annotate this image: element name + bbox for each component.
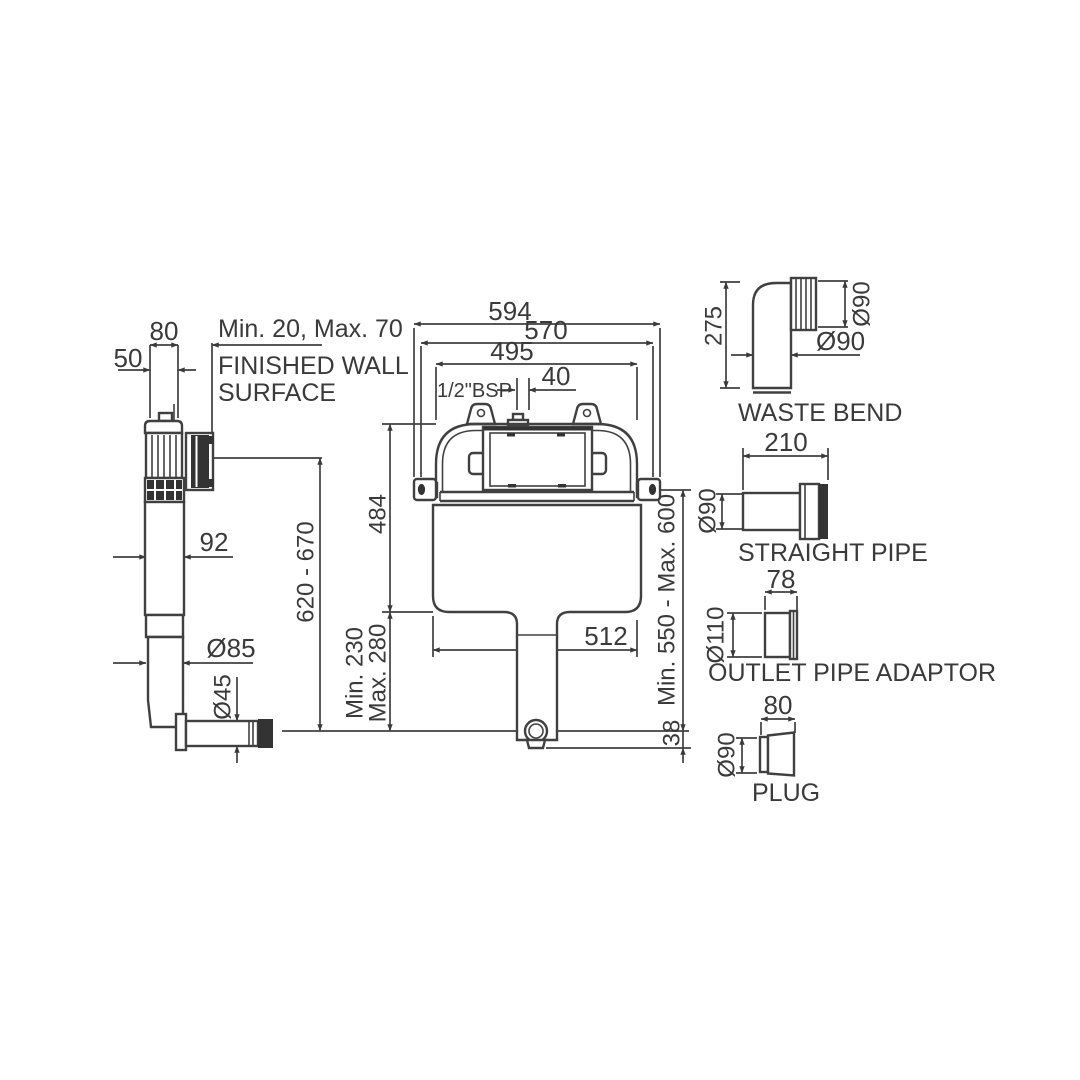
inlet-bsp-label: 1/2"BSP [437, 380, 512, 402]
cistern-installation-drawing: 80 50 Min. 20, Max. 70 FINISHED WALL SUR… [0, 0, 1080, 1080]
finished-wall-label-line1: FINISHED WALL [218, 352, 409, 380]
outlet-pipe-adaptor [727, 592, 797, 659]
straight-pipe [716, 448, 828, 539]
adaptor-title: OUTLET PIPE ADAPTOR [708, 659, 996, 687]
plug-dia-label: Ø90 [713, 732, 740, 777]
technical-drawing-page: 80 50 Min. 20, Max. 70 FINISHED WALL SUR… [0, 0, 1080, 1080]
waste-bend-title: WASTE BEND [738, 399, 902, 427]
finished-wall-label-line2: SURFACE [218, 379, 336, 407]
dim-484-label: 484 [364, 494, 391, 534]
accessory-labels: 275 Ø90 Ø90 WASTE BEND 210 Ø90 STRAIGHT … [694, 281, 996, 807]
dim-40-label: 40 [542, 361, 571, 391]
adaptor-dia-label: Ø110 [702, 607, 729, 664]
dim-80-label: 80 [150, 316, 179, 346]
flush-plate-side [186, 433, 214, 490]
plug [736, 719, 795, 776]
dim-d45-label: Ø45 [209, 674, 236, 719]
access-panel [483, 427, 592, 490]
waste-bend-socket-dia-label: Ø90 [848, 281, 875, 326]
dim-92-label: 92 [200, 527, 229, 557]
plug-length-label: 80 [764, 690, 793, 720]
front-view [414, 404, 660, 748]
dim-max-280-label: Max. 280 [364, 624, 391, 723]
wall-bracket-left [414, 479, 437, 500]
straight-pipe-title: STRAIGHT PIPE [738, 539, 928, 567]
dim-512-label: 512 [584, 621, 627, 651]
plug-title: PLUG [752, 779, 820, 807]
dim-d85-label: Ø85 [206, 633, 255, 663]
adaptor-length-label: 78 [767, 564, 796, 594]
waste-bend-height-label: 275 [700, 306, 727, 346]
straight-pipe-length-label: 210 [764, 427, 807, 457]
waste-bend-pipe-dia-label: Ø90 [816, 326, 865, 356]
straight-pipe-dia-label: Ø90 [694, 488, 721, 533]
dim-50-label: 50 [114, 343, 143, 373]
dim-495-label: 495 [490, 336, 533, 366]
wall-offset-label: Min. 20, Max. 70 [218, 315, 403, 343]
dim-620-670-label: 620 - 670 [292, 521, 319, 622]
dim-install-height-label: Min. 550 - Max. 600 [653, 494, 680, 706]
dim-38-label: 38 [658, 720, 685, 747]
clamp-bands [145, 478, 184, 502]
